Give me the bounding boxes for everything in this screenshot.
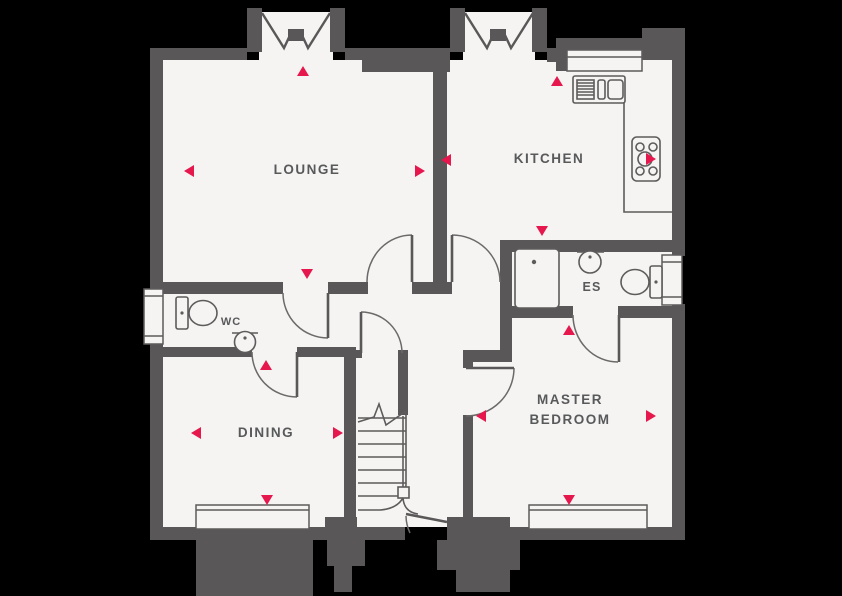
master-bedroom-window [529,505,647,529]
es-label: ES [582,280,601,294]
dining-label: DINING [238,425,294,440]
driveway-slab [196,535,313,596]
kitchen-label: KITCHEN [514,151,585,166]
es-window [662,255,682,305]
master-bedroom-label-line1: MASTER [537,392,603,407]
lounge-label: LOUNGE [274,162,341,177]
porch-pillar-right [437,540,520,570]
newel-post [398,487,409,498]
dining-window [196,505,309,529]
shower-icon [515,249,559,308]
floor-plan: LOUNGE KITCHEN WC ES DINING MASTER BEDRO… [0,0,842,596]
porch-step-right [456,570,510,592]
kitchen-window [567,50,642,71]
kitchen-sink-icon [573,76,625,103]
floor-plan-stage: LOUNGE KITCHEN WC ES DINING MASTER BEDRO… [0,0,842,596]
porch-pillar-left [327,540,365,566]
es-toilet-icon [621,266,662,298]
porch-step-left [334,566,352,592]
wc-window [144,289,163,344]
wc-label: WC [221,316,241,328]
master-bedroom-label-line2: BEDROOM [530,412,611,427]
wc-toilet-icon [176,297,217,329]
